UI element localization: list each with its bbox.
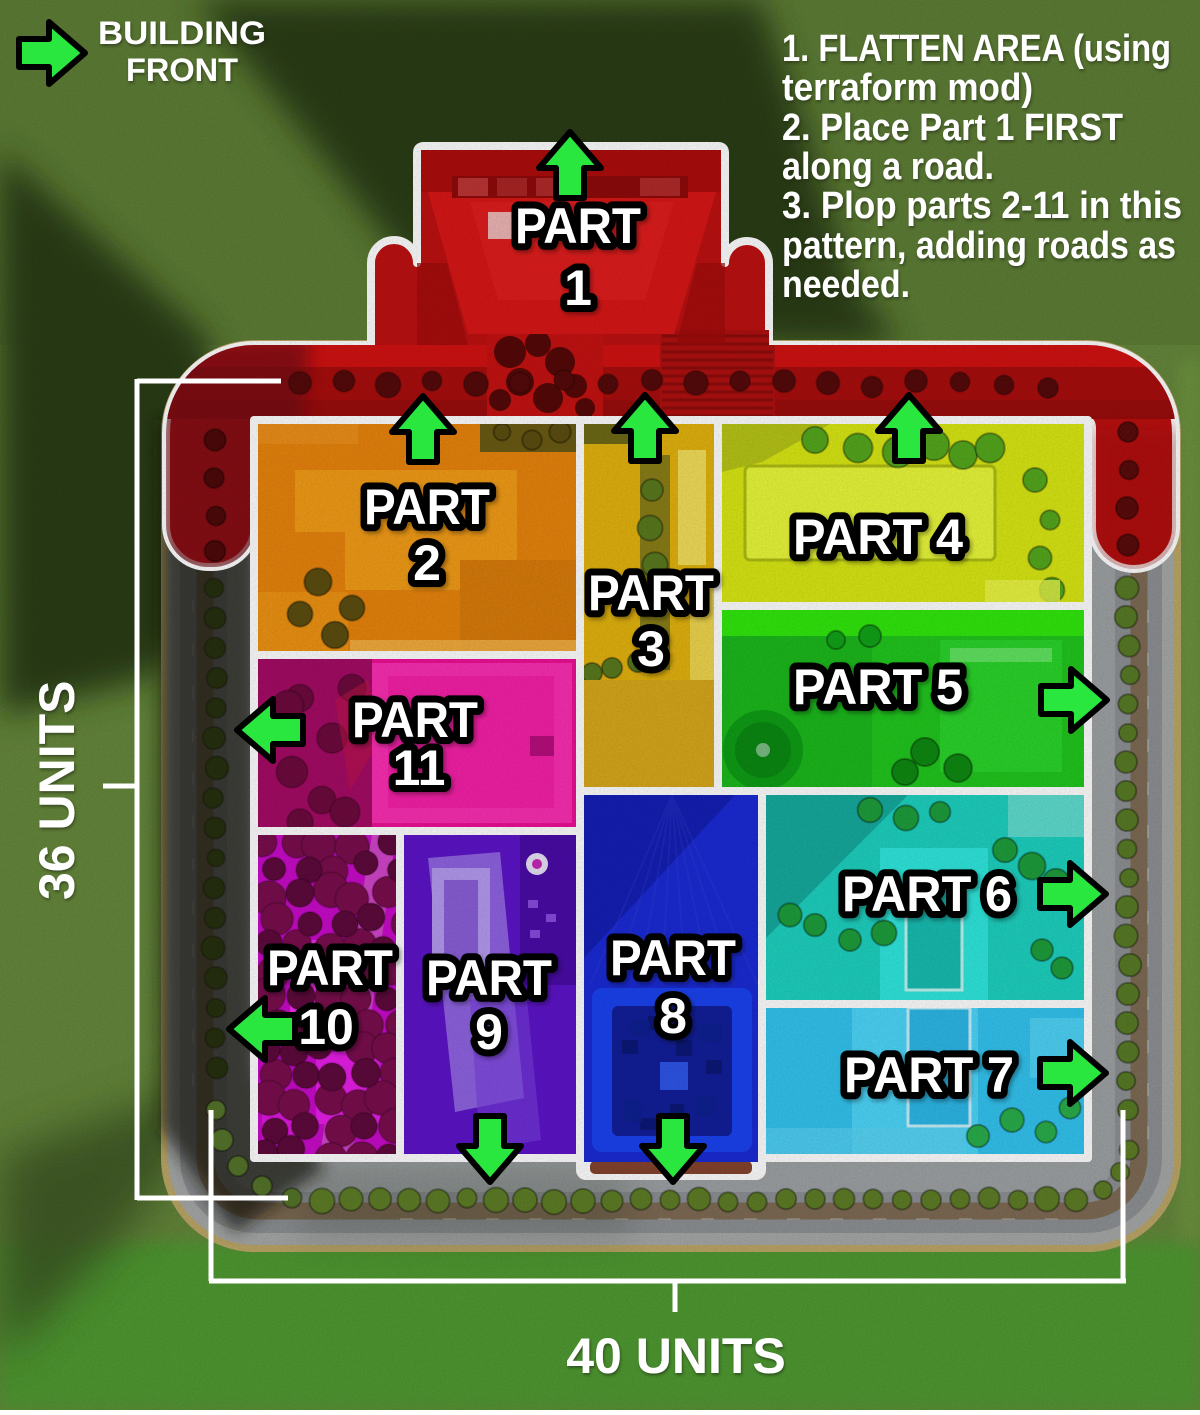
svg-text:FRONT: FRONT [126, 52, 238, 88]
svg-text:terraform mod): terraform mod) [782, 67, 1033, 109]
svg-text:1. FLATTEN AREA (using: 1. FLATTEN AREA (using [782, 28, 1171, 70]
svg-text:3. Plop parts 2-11 in this: 3. Plop parts 2-11 in this [782, 185, 1182, 227]
svg-text:PART: PART [610, 930, 736, 986]
svg-text:10: 10 [298, 999, 354, 1055]
svg-text:needed.: needed. [782, 264, 910, 306]
svg-text:40 UNITS: 40 UNITS [566, 1328, 786, 1384]
svg-text:PART 4: PART 4 [793, 509, 963, 565]
svg-text:BUILDING: BUILDING [98, 15, 266, 51]
svg-text:2: 2 [413, 535, 441, 591]
svg-text:PART 6: PART 6 [842, 866, 1012, 922]
svg-text:along a road.: along a road. [782, 146, 994, 188]
svg-text:1: 1 [564, 260, 592, 316]
svg-text:PART 5: PART 5 [793, 659, 963, 715]
svg-text:PART: PART [588, 565, 714, 621]
svg-text:3: 3 [637, 621, 665, 677]
svg-text:2. Place Part 1 FIRST: 2. Place Part 1 FIRST [782, 107, 1123, 149]
svg-text:8: 8 [659, 988, 687, 1044]
svg-text:9: 9 [475, 1004, 503, 1060]
svg-text:PART: PART [364, 479, 490, 535]
svg-text:PART: PART [515, 198, 641, 254]
svg-text:11: 11 [393, 740, 446, 796]
svg-text:pattern, adding roads as: pattern, adding roads as [782, 225, 1176, 267]
svg-text:PART 7: PART 7 [844, 1047, 1014, 1103]
svg-text:PART: PART [267, 940, 393, 996]
svg-text:36 UNITS: 36 UNITS [29, 680, 85, 900]
svg-text:PART: PART [426, 950, 552, 1006]
